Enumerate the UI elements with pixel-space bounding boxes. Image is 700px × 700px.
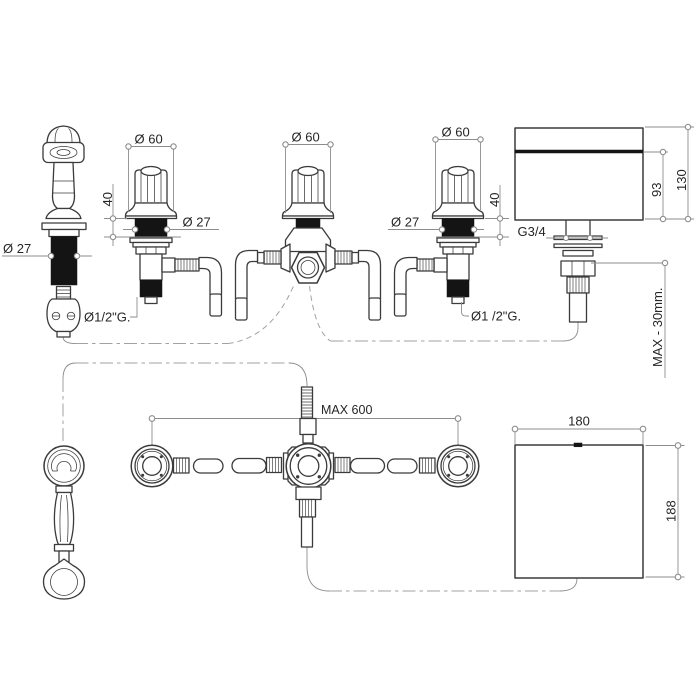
connection-left-label: Ø1/2"G. xyxy=(84,310,131,325)
spout-plan xyxy=(515,443,643,578)
handshower-shank-diameter-label: Ø 27 xyxy=(3,241,31,256)
spout-connection-label: G3/4 xyxy=(518,224,546,239)
valve-left-plan xyxy=(131,445,223,487)
valve-left-shank-diameter-label: Ø 27 xyxy=(183,215,211,230)
dim-spout-deck-max: MAX - 30mm. xyxy=(591,260,668,378)
plan-view: MAX 600 xyxy=(44,363,685,599)
handshower-plan xyxy=(44,446,85,599)
connection-right-label: Ø1 /2"G. xyxy=(471,309,521,324)
valve-right-handle-diameter-label: Ø 60 xyxy=(442,125,470,140)
spout-deck-max-label: MAX - 30mm. xyxy=(650,288,665,367)
dim-spout-total-height: 130 xyxy=(645,124,694,221)
valve-right-elevation: Ø 27 xyxy=(388,167,484,317)
diverter-elevation xyxy=(236,167,381,321)
label-connection-right: Ø1 /2"G. xyxy=(462,302,522,324)
dim-spout-depth: 188 xyxy=(646,443,685,580)
label-spout-connection: G3/4 xyxy=(518,224,609,241)
spout-total-height-label: 130 xyxy=(674,169,689,191)
label-connection-left: Ø1/2"G. xyxy=(84,297,137,325)
technical-drawing-page: Ø 27 Ø 27 xyxy=(0,0,700,700)
valve-left-deck-label: 40 xyxy=(100,192,115,206)
dim-spout-width: 180 xyxy=(512,414,646,445)
spout-width-label: 180 xyxy=(568,414,590,429)
valve-right-deck-label: 40 xyxy=(487,193,502,207)
spout-body-height-label: 93 xyxy=(649,183,664,197)
valve-centres-label: MAX 600 xyxy=(321,403,372,417)
spout-depth-label: 188 xyxy=(664,500,679,522)
elevation-view: Ø 27 Ø 27 xyxy=(2,124,694,378)
valve-left-handle-diameter-label: Ø 60 xyxy=(135,132,163,147)
valve-right-shank-diameter-label: Ø 27 xyxy=(391,215,419,230)
valve-left-elevation: Ø 27 xyxy=(123,167,222,317)
valve-right-plan xyxy=(388,445,479,487)
handshower-elevation: Ø 27 xyxy=(2,126,92,337)
diverter-handle-diameter-label: Ø 60 xyxy=(292,130,320,145)
bath-mixer-technical-drawing: Ø 27 Ø 27 xyxy=(0,0,700,700)
